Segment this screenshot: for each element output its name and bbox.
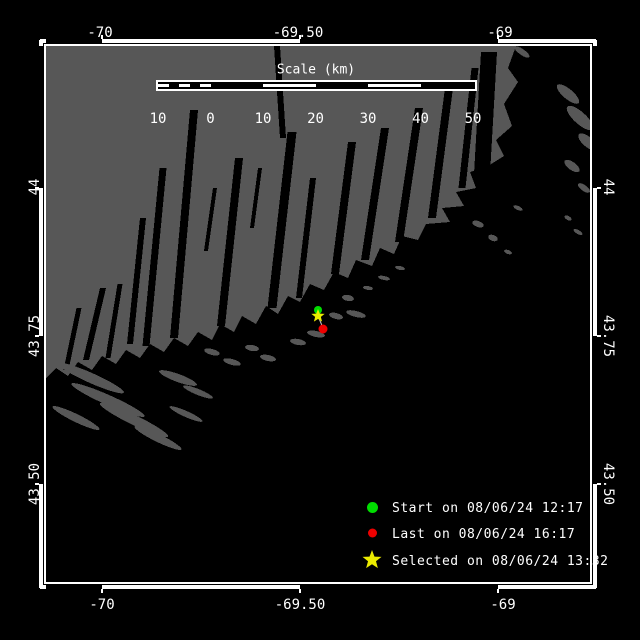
lon-label-bottom-3: -69 [490, 597, 515, 613]
lon-label-top-3: -69 [487, 25, 512, 41]
lon-label-bottom-1: -70 [89, 597, 114, 613]
lon-label-top-2: -69.50 [273, 25, 324, 41]
lat-label-right-3: 43.50 [600, 463, 616, 505]
scale-label-30: 30 [360, 111, 377, 127]
scale-label-20: 20 [307, 111, 324, 127]
lat-label-left-2: 43.75 [27, 315, 43, 357]
lat-label-left-1: 44 [27, 179, 43, 196]
legend-last-label: Last on 08/06/24 16:17 [392, 527, 575, 542]
scale-bar-title: Scale (km) [277, 63, 355, 78]
map-frame-zebra-bottom [40, 585, 596, 589]
scale-label-0: 0 [206, 111, 214, 127]
drifter-track-map-screen: { "colors": { "background": "#000000", "… [0, 0, 640, 640]
tick-bottom-6950 [299, 589, 301, 593]
lat-label-left-3: 43.50 [27, 463, 43, 505]
scale-label-40: 40 [412, 111, 429, 127]
scale-bar [156, 80, 477, 91]
tick-bottom-69 [497, 589, 499, 593]
lon-label-bottom-2: -69.50 [275, 597, 326, 613]
legend-start-label: Start on 08/06/24 12:17 [392, 501, 584, 516]
scale-label-50: 50 [465, 111, 482, 127]
lat-label-right-2: 43.75 [600, 315, 616, 357]
lat-label-right-1: 44 [600, 179, 616, 196]
lon-label-top-1: -70 [87, 25, 112, 41]
scale-label-10L: 10 [150, 111, 167, 127]
map-frame-zebra-right [593, 40, 597, 588]
scale-label-10: 10 [255, 111, 272, 127]
tick-bottom-70 [101, 589, 103, 593]
legend-selected-label: Selected on 08/06/24 13:32 [392, 554, 609, 569]
